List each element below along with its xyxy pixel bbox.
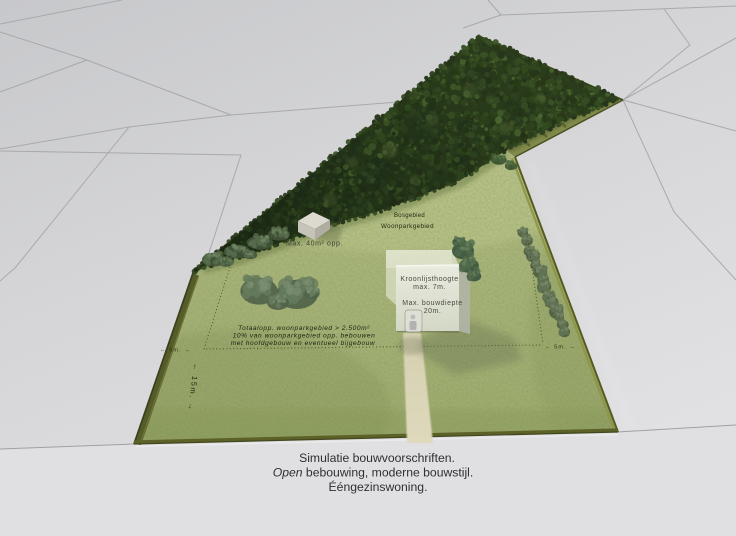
svg-text:Woonparkgebied: Woonparkgebied (381, 223, 434, 230)
svg-text:Bosgebied: Bosgebied (394, 213, 425, 219)
svg-text:Open bebouwing, moderne bouwst: Open bebouwing, moderne bouwstijl. (273, 466, 474, 480)
svg-text:Max. bouwdiepte: Max. bouwdiepte (402, 300, 462, 307)
svg-text:10% van woonparkgebied opp. be: 10% van woonparkgebied opp. bebouwen (233, 333, 376, 340)
svg-text:Simulatie bouwvoorschriften.: Simulatie bouwvoorschriften. (299, 451, 455, 465)
svg-text:← 5m. →: ← 5m. → (545, 345, 576, 351)
svg-text:← 5m. →: ← 5m. → (160, 348, 191, 354)
svg-text:met hoofdgebouw en eventueel b: met hoofdgebouw en eventueel bijgebouw (231, 340, 376, 347)
svg-text:Totaalopp. woonparkgebied > 2.: Totaalopp. woonparkgebied > 2.500m² (238, 325, 370, 332)
svg-text:Kroonlijsthoogte: Kroonlijsthoogte (400, 276, 458, 283)
svg-text:Max. 40m² opp.: Max. 40m² opp. (286, 241, 343, 248)
svg-text:Ééngezinswoning.: Ééngezinswoning. (329, 479, 428, 494)
svg-text:20m.: 20m. (424, 308, 442, 315)
svg-text:max. 7m.: max. 7m. (413, 284, 446, 291)
